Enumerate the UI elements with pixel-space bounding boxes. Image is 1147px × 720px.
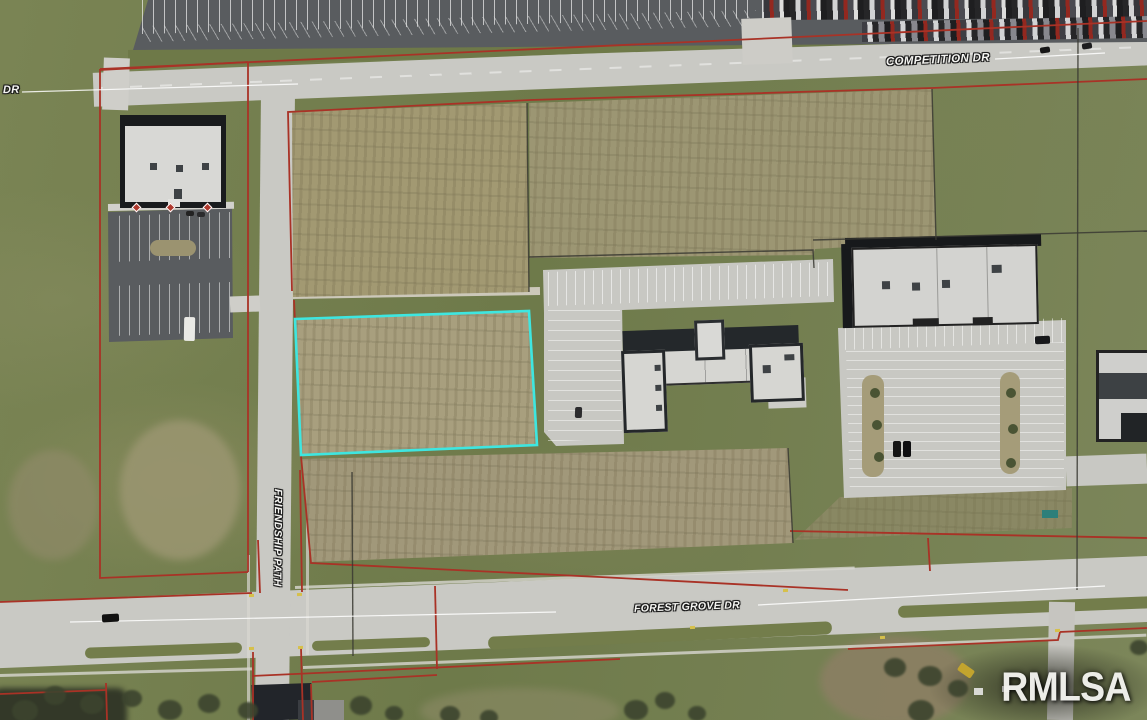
curb-ramp-marking: [690, 626, 695, 629]
car: [903, 441, 911, 457]
island-tree: [872, 420, 882, 430]
car: [197, 212, 205, 217]
parcel-lines-dark: [352, 28, 1147, 656]
highlighted-parcel-outline: [295, 311, 537, 455]
tree: [1130, 640, 1147, 655]
car: [893, 441, 901, 457]
car: [575, 407, 582, 418]
curb-ramp-marking: [249, 647, 254, 650]
island-tree: [1006, 458, 1016, 468]
car: [1035, 336, 1050, 345]
curb-ramp-marking: [783, 589, 788, 592]
tree: [688, 706, 706, 720]
curb-ramp-marking: [297, 593, 302, 596]
tree: [198, 694, 220, 713]
tree: [385, 706, 403, 720]
car: [102, 614, 119, 623]
island-tree: [870, 388, 880, 398]
island-tree: [1006, 388, 1016, 398]
parcel-boundary-overlay: [0, 0, 1147, 720]
tree: [158, 700, 182, 720]
tree: [122, 690, 142, 707]
tree: [350, 696, 372, 715]
rmlsa-watermark-logo: RMLSA: [1001, 666, 1131, 707]
car: [186, 211, 194, 216]
car: [184, 317, 195, 341]
curb-ramp-marking: [1055, 629, 1060, 632]
tree: [44, 686, 66, 705]
tree: [440, 706, 460, 720]
curb-ramp-marking: [249, 594, 254, 597]
island-tree: [874, 452, 884, 462]
street-label-friendship-path: FRIENDSHIP PATH: [271, 489, 284, 587]
aerial-map-image[interactable]: COMPETITION DR DR FRIENDSHIP PATH FOREST…: [0, 0, 1147, 720]
tree: [908, 700, 934, 720]
island-tree: [1008, 424, 1018, 434]
curb-ramp-marking: [298, 646, 303, 649]
tree: [480, 710, 498, 720]
tree: [238, 702, 258, 719]
curb-ramp-marking: [880, 636, 885, 639]
tree: [655, 692, 675, 709]
street-label-dr-partial: DR: [3, 84, 20, 96]
tree: [624, 700, 648, 720]
tree: [948, 680, 968, 697]
parcel-lines-red: [0, 21, 1147, 720]
tree: [12, 700, 38, 720]
tree: [884, 658, 906, 677]
